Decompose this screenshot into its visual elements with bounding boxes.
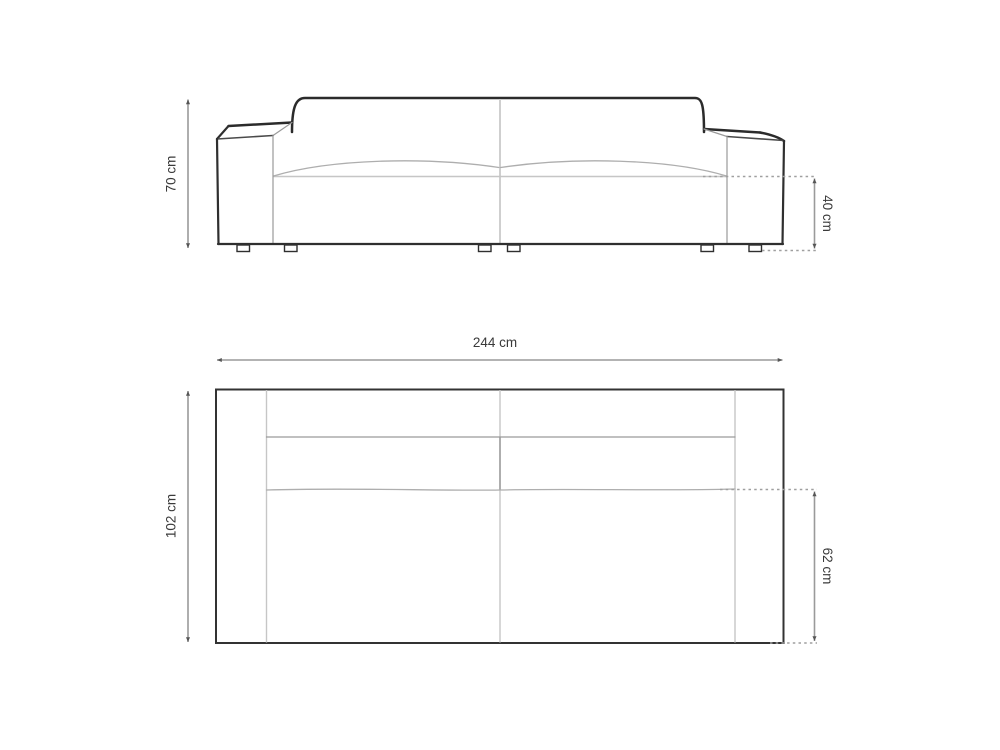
dimension-label-70: 70 cm [164,156,179,193]
top-view: 244 cm 102 cm 62 cm [164,335,835,643]
dimension-label-102: 102 cm [164,494,179,538]
sofa-leg [749,245,762,252]
left-cushion-curve [274,161,500,176]
sofa-leg [701,245,714,252]
left-armrest-left-edge [217,139,219,244]
sofa-leg [237,245,250,252]
left-armrest [217,123,292,245]
sofa-leg [508,245,521,252]
right-armrest-right-edge [783,141,785,244]
right-cushion-curve [501,161,727,176]
dimension-overall-height: 70 cm [164,100,188,249]
dimension-label-62: 62 cm [820,548,835,585]
sofa-dimension-drawing: 70 cm 40 cm 244 cm [0,0,1000,750]
right-armrest [704,129,784,244]
front-view: 70 cm 40 cm [164,98,835,252]
drawing-canvas: 70 cm 40 cm 244 cm [0,0,1000,750]
dimension-label-40: 40 cm [820,195,835,232]
sofa-leg [479,245,492,252]
dimension-overall-depth: 102 cm [164,391,188,642]
sofa-leg [285,245,298,252]
dimension-label-244: 244 cm [473,335,517,350]
backrest-outline [292,98,704,132]
dimension-overall-width: 244 cm [217,335,783,360]
dimension-seat-height: 40 cm [703,177,835,251]
